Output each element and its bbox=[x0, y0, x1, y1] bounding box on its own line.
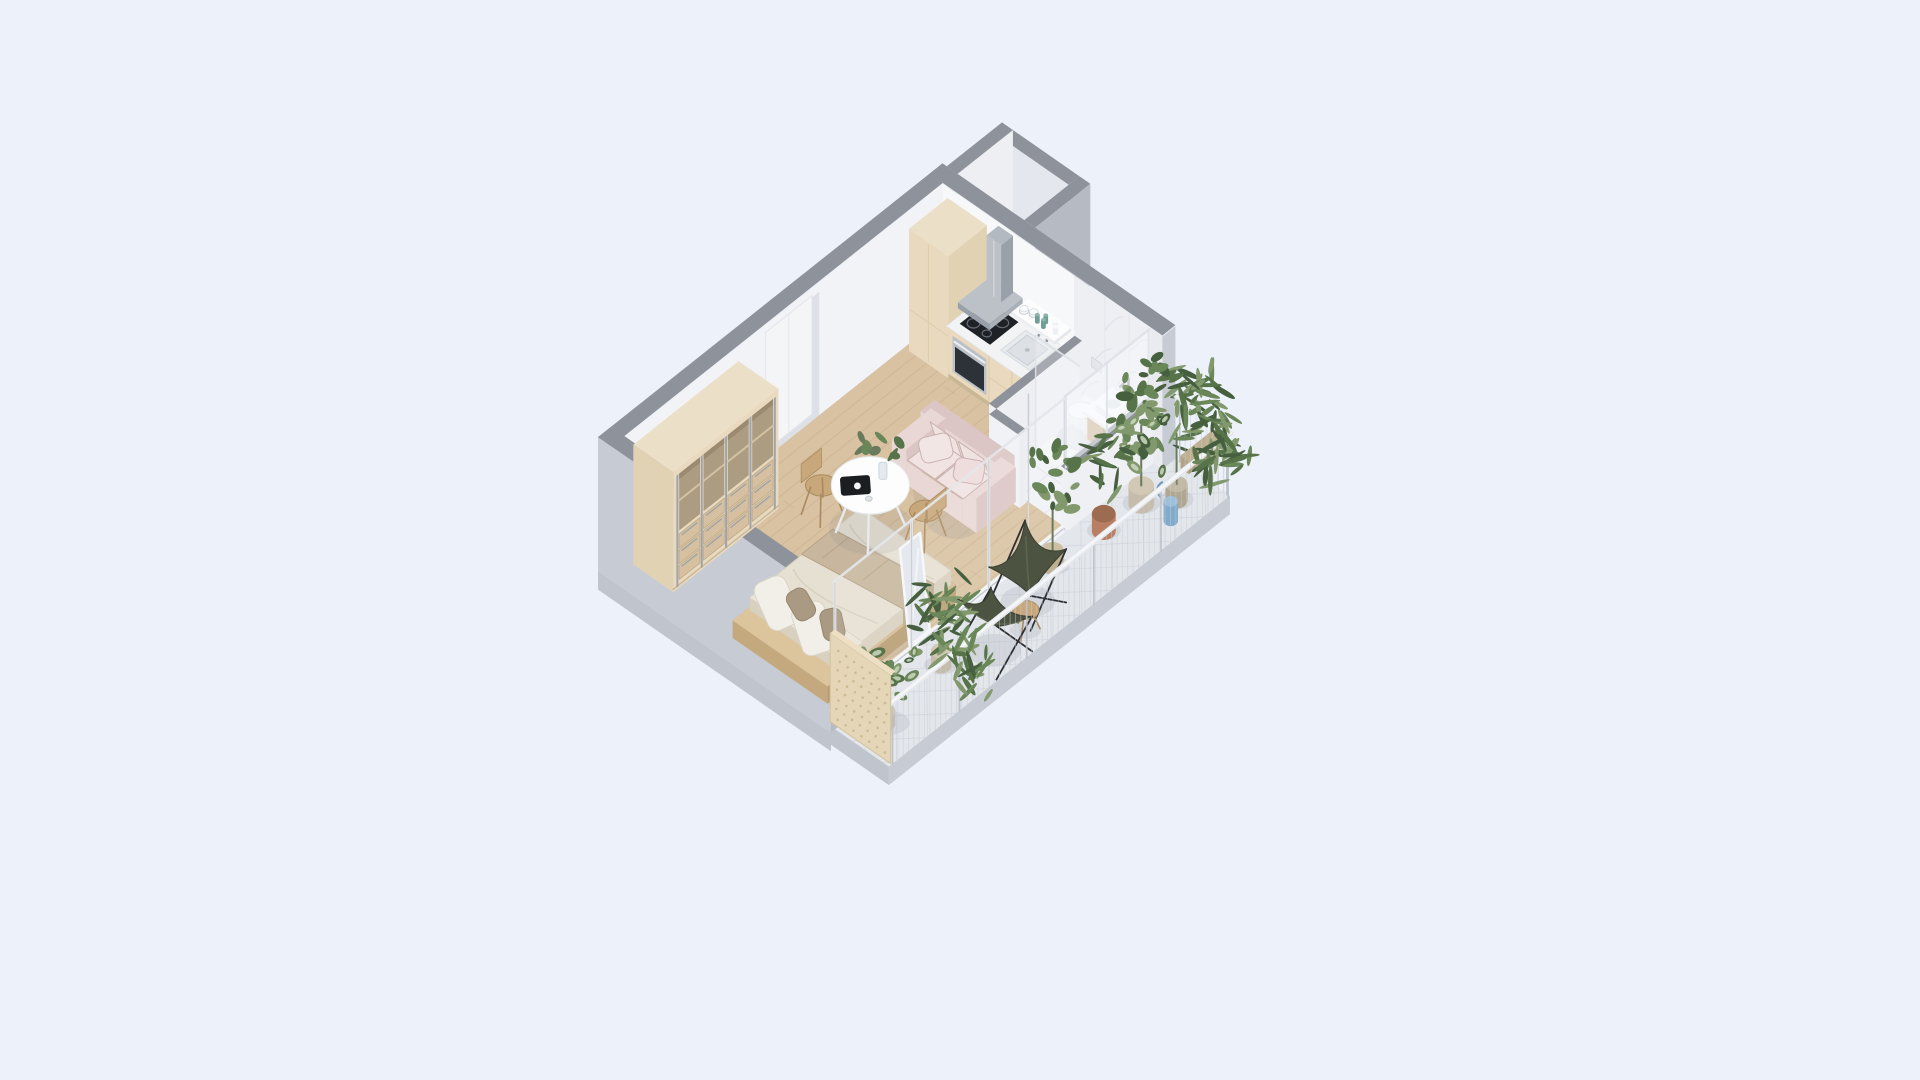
isometric-floorplan-stage bbox=[0, 0, 1920, 1080]
floorplan-render bbox=[0, 0, 1920, 1080]
